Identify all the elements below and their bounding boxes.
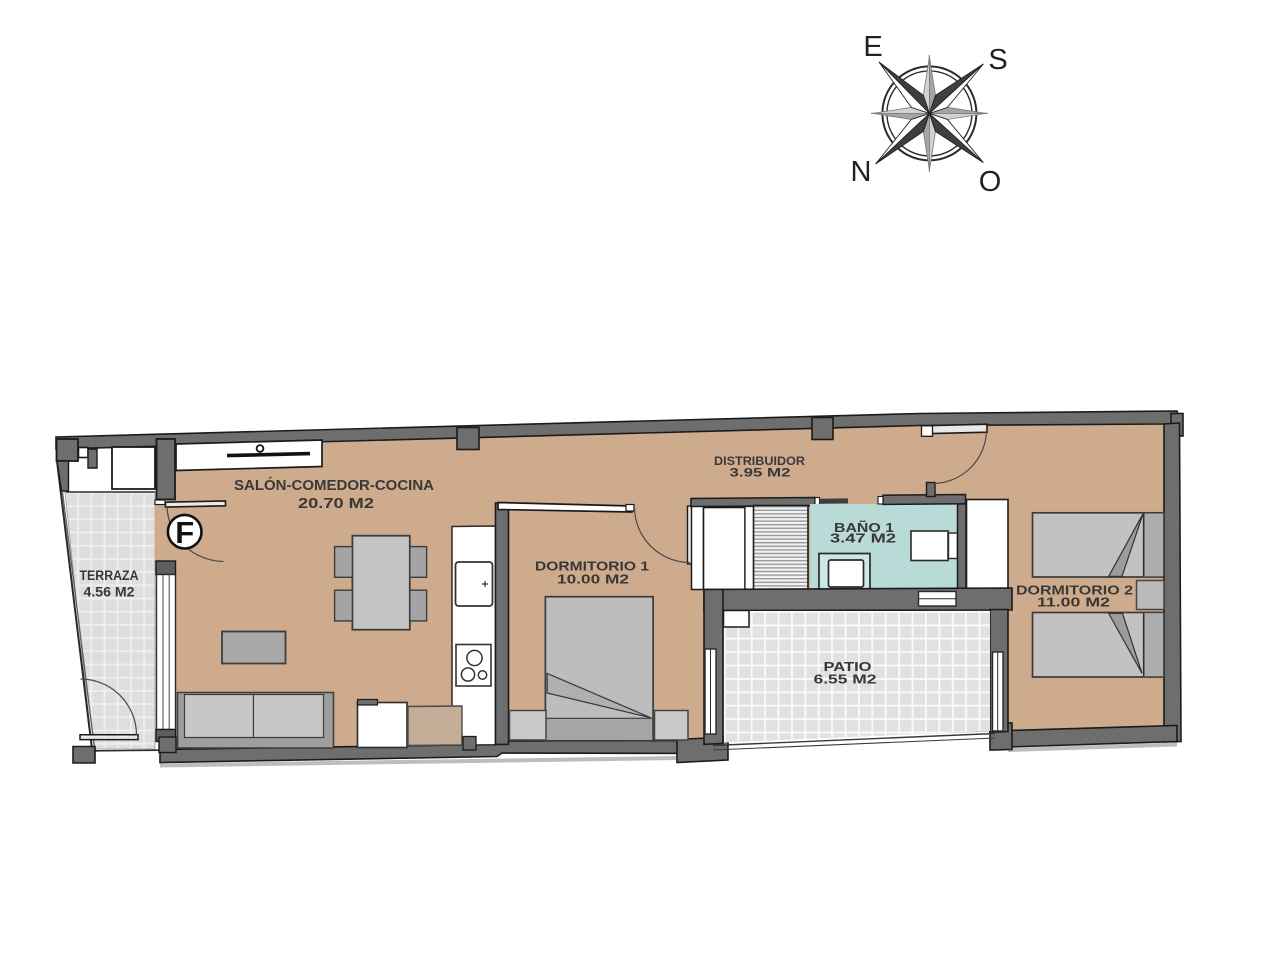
svg-text:4.56 M2: 4.56 M2 xyxy=(84,585,135,600)
svg-text:11.00 M2: 11.00 M2 xyxy=(1037,595,1110,610)
svg-text:O: O xyxy=(979,166,1002,198)
svg-text:DISTRIBUIDOR: DISTRIBUIDOR xyxy=(714,456,806,468)
svg-text:3.95 M2: 3.95 M2 xyxy=(730,468,791,480)
svg-text:F: F xyxy=(175,515,194,550)
svg-text:S: S xyxy=(988,44,1007,76)
svg-text:SALÓN-COMEDOR-COCINA: SALÓN-COMEDOR-COCINA xyxy=(234,476,435,494)
svg-text:TERRAZA: TERRAZA xyxy=(80,568,139,583)
svg-text:20.70 M2: 20.70 M2 xyxy=(298,496,374,512)
svg-text:6.55 M2: 6.55 M2 xyxy=(814,673,877,687)
svg-text:E: E xyxy=(863,31,882,63)
svg-text:N: N xyxy=(851,156,872,188)
svg-text:10.00 M2: 10.00 M2 xyxy=(557,572,629,587)
svg-text:3.47 M2: 3.47 M2 xyxy=(830,532,896,546)
